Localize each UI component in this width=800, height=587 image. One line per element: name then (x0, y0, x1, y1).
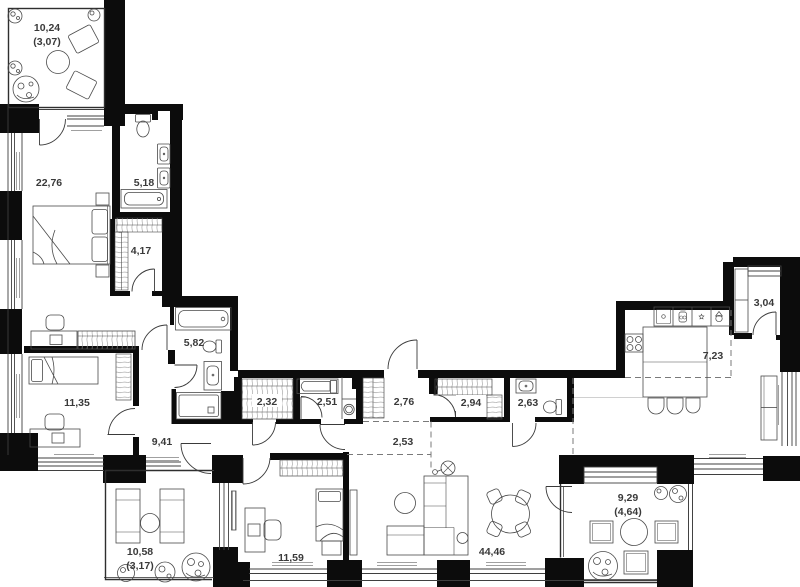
svg-text:22,76: 22,76 (36, 177, 62, 189)
svg-text:9,41: 9,41 (152, 436, 173, 448)
svg-text:7,23: 7,23 (703, 350, 724, 362)
svg-text:2,63: 2,63 (518, 397, 539, 409)
svg-text:10,58: 10,58 (127, 546, 153, 558)
svg-text:2,76: 2,76 (394, 396, 415, 408)
svg-text:2,51: 2,51 (317, 396, 338, 408)
svg-text:10,24: 10,24 (34, 22, 60, 34)
svg-text:4,17: 4,17 (131, 245, 152, 257)
svg-text:(3,17): (3,17) (126, 560, 153, 572)
svg-text:11,35: 11,35 (64, 397, 90, 409)
svg-text:11,59: 11,59 (278, 552, 304, 564)
svg-text:44,46: 44,46 (479, 546, 505, 558)
svg-text:5,82: 5,82 (184, 337, 205, 349)
svg-text:(3,07): (3,07) (33, 36, 60, 48)
svg-text:2,53: 2,53 (393, 436, 414, 448)
svg-text:3,04: 3,04 (754, 297, 775, 309)
svg-text:2,94: 2,94 (461, 397, 482, 409)
svg-text:(4,64): (4,64) (614, 506, 641, 518)
svg-text:5,18: 5,18 (134, 177, 155, 189)
svg-text:2,32: 2,32 (257, 396, 278, 408)
svg-text:9,29: 9,29 (618, 492, 639, 504)
